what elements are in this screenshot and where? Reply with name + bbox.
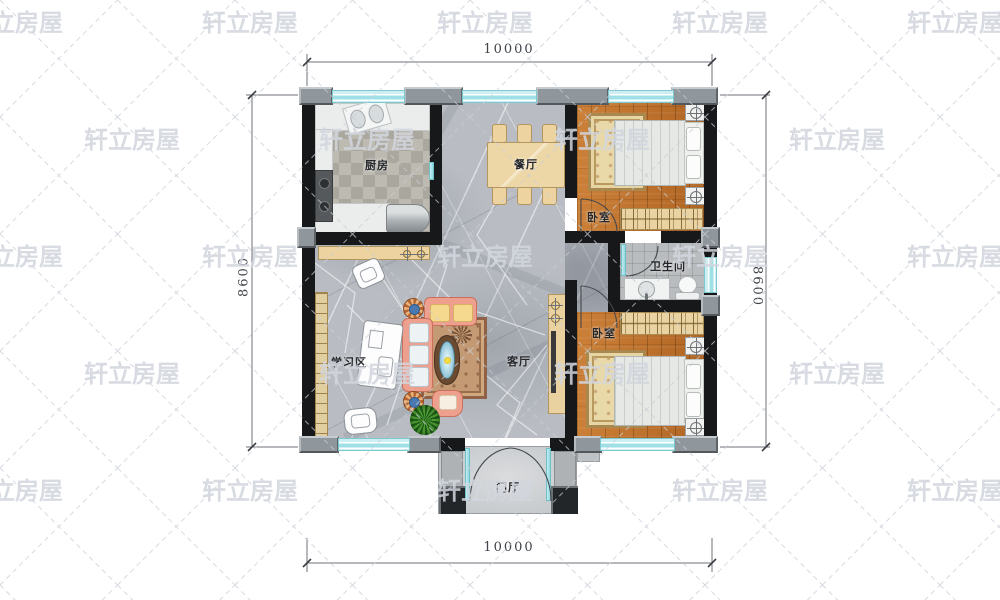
wall-pillar xyxy=(536,87,609,105)
potted-plant xyxy=(410,405,440,435)
dining-chair xyxy=(517,186,532,205)
bedroom1-window xyxy=(608,90,674,103)
room-label-study: 学习区 xyxy=(331,354,367,370)
entry-door-leaf-left xyxy=(465,448,470,501)
room-label-dining: 餐厅 xyxy=(514,156,538,172)
nightstand-decor xyxy=(690,191,702,203)
wall-pillar xyxy=(297,227,316,248)
watermark-text: 轩立房屋 xyxy=(202,477,298,505)
bedroom2-bed xyxy=(614,356,686,426)
kitchen-pass-through xyxy=(429,162,434,180)
bathroom-vanity xyxy=(624,278,670,300)
dining-chair xyxy=(492,124,507,143)
tv-cabinet-decor xyxy=(551,314,560,323)
porch-pillar-left-shaft xyxy=(441,451,463,489)
wall-pillar xyxy=(574,436,602,453)
dimension-bottom: 10000 xyxy=(449,540,569,555)
stove-burner xyxy=(319,178,330,189)
wall-pillar xyxy=(672,436,718,453)
watermark-text: 轩立房屋 xyxy=(0,9,63,37)
sketch-cushion xyxy=(350,413,370,429)
sofa-cushion xyxy=(430,304,450,322)
sideboard-decor-circle xyxy=(417,250,425,258)
wall-pillar xyxy=(701,227,720,248)
room-label-bedroom2: 卧室 xyxy=(592,325,616,341)
sofa-cushion xyxy=(409,323,429,343)
porch-pillar-right xyxy=(551,486,578,514)
bathroom-window xyxy=(704,257,717,293)
watermark-text: 轩立房屋 xyxy=(84,360,180,388)
dimension-right: 8600 xyxy=(750,257,765,317)
wall-bedroom1-bottom-a xyxy=(565,231,625,243)
wall-bedroom1-left xyxy=(565,103,577,198)
kitchen-window xyxy=(332,90,405,103)
coffee-table xyxy=(434,335,460,385)
dining-chair xyxy=(492,186,507,205)
bedroom2-pillow xyxy=(686,364,701,389)
tv-cabinet-decor xyxy=(551,301,560,310)
room-label-bedroom1: 卧室 xyxy=(587,209,611,225)
sink-basin-left xyxy=(348,108,368,130)
sketch-paper xyxy=(368,330,384,350)
dining-chair xyxy=(542,186,557,205)
sketch-paper xyxy=(376,356,393,378)
entry-door-leaf-right xyxy=(546,448,551,501)
watermark-text: 轩立房屋 xyxy=(789,126,885,154)
watermark-text: 轩立房屋 xyxy=(907,9,1000,37)
watermark-text: 轩立房屋 xyxy=(84,126,180,154)
nightstand-decor xyxy=(690,341,702,353)
bathroom-faucet xyxy=(645,293,648,300)
floor-plan-canvas: 10000 10000 8600 8600 xyxy=(0,0,1000,600)
watermark-text: 轩立房屋 xyxy=(672,9,768,37)
bathroom-door-leaf xyxy=(621,244,626,276)
wall-bedroom2-left xyxy=(565,280,577,438)
dimension-left: 8600 xyxy=(237,247,252,307)
kitchen-island-curved xyxy=(386,204,430,233)
tv-screen xyxy=(551,331,556,393)
bedroom2-pillow xyxy=(686,392,701,417)
wall-pillar xyxy=(671,87,718,105)
watermark-text: 轩立房屋 xyxy=(0,243,63,271)
sofa-cushion xyxy=(409,367,429,387)
dimension-top: 10000 xyxy=(449,42,569,57)
tv-cabinet xyxy=(548,294,566,414)
bedroom2-nightstand xyxy=(685,418,705,436)
nightstand-decor xyxy=(690,107,702,119)
sketch-seat xyxy=(358,265,378,283)
room-label-entry: 门厅 xyxy=(496,479,520,495)
wall-left xyxy=(302,90,315,451)
bedroom2-window xyxy=(600,438,675,451)
round-stool xyxy=(403,298,424,319)
wall-pillar xyxy=(404,87,463,105)
room-label-kitchen: 厨房 xyxy=(365,157,389,173)
bedroom1-bed xyxy=(614,120,686,186)
watermark-text: 轩立房屋 xyxy=(437,9,533,37)
sofa-cushion xyxy=(453,304,473,322)
wall-pillar xyxy=(407,436,441,453)
bedroom1-nightstand xyxy=(685,187,705,205)
armchair-cushion xyxy=(439,395,457,410)
bedroom2-nightstand xyxy=(685,337,705,355)
room-label-living: 客厅 xyxy=(507,353,531,369)
study-armchair-sketch xyxy=(343,406,379,435)
toilet-tank xyxy=(675,292,700,300)
coffee-table-flower xyxy=(444,357,451,364)
dining-chair xyxy=(542,124,557,143)
watermark-text: 轩立房屋 xyxy=(0,477,63,505)
wall-kitchen-bottom xyxy=(302,232,442,245)
study-window xyxy=(338,438,410,451)
nightstand-decor xyxy=(690,422,702,434)
wall-pillar xyxy=(701,295,720,316)
porch-pillar-right-shaft xyxy=(554,451,576,489)
dining-chair xyxy=(517,124,532,143)
room-label-bathroom: 卫生间 xyxy=(650,258,686,274)
bedroom1-nightstand xyxy=(685,103,705,121)
watermark-text: 轩立房屋 xyxy=(672,477,768,505)
watermark-text: 轩立房屋 xyxy=(907,477,1000,505)
watermark-text: 轩立房屋 xyxy=(789,360,885,388)
sink-basin-right xyxy=(366,103,386,125)
kitchen-stove xyxy=(315,170,333,222)
sofa-cushion xyxy=(409,345,429,365)
bedroom1-pillow xyxy=(686,155,701,179)
sideboard-decor-circle xyxy=(403,250,411,258)
study-bookshelf xyxy=(315,292,328,437)
stool-center xyxy=(409,304,420,315)
bedroom1-wardrobe xyxy=(620,208,703,230)
porch-pillar-left xyxy=(439,486,466,514)
wall-pillar xyxy=(299,436,339,453)
bedroom2-wardrobe xyxy=(620,312,704,335)
dining-window xyxy=(462,90,537,103)
three-seat-sofa xyxy=(402,318,433,392)
stove-burner xyxy=(319,201,330,212)
watermark-text: 轩立房屋 xyxy=(202,9,298,37)
wall-pillar xyxy=(299,87,333,105)
watermark-text: 轩立房屋 xyxy=(907,243,1000,271)
bedroom1-pillow xyxy=(686,127,701,151)
